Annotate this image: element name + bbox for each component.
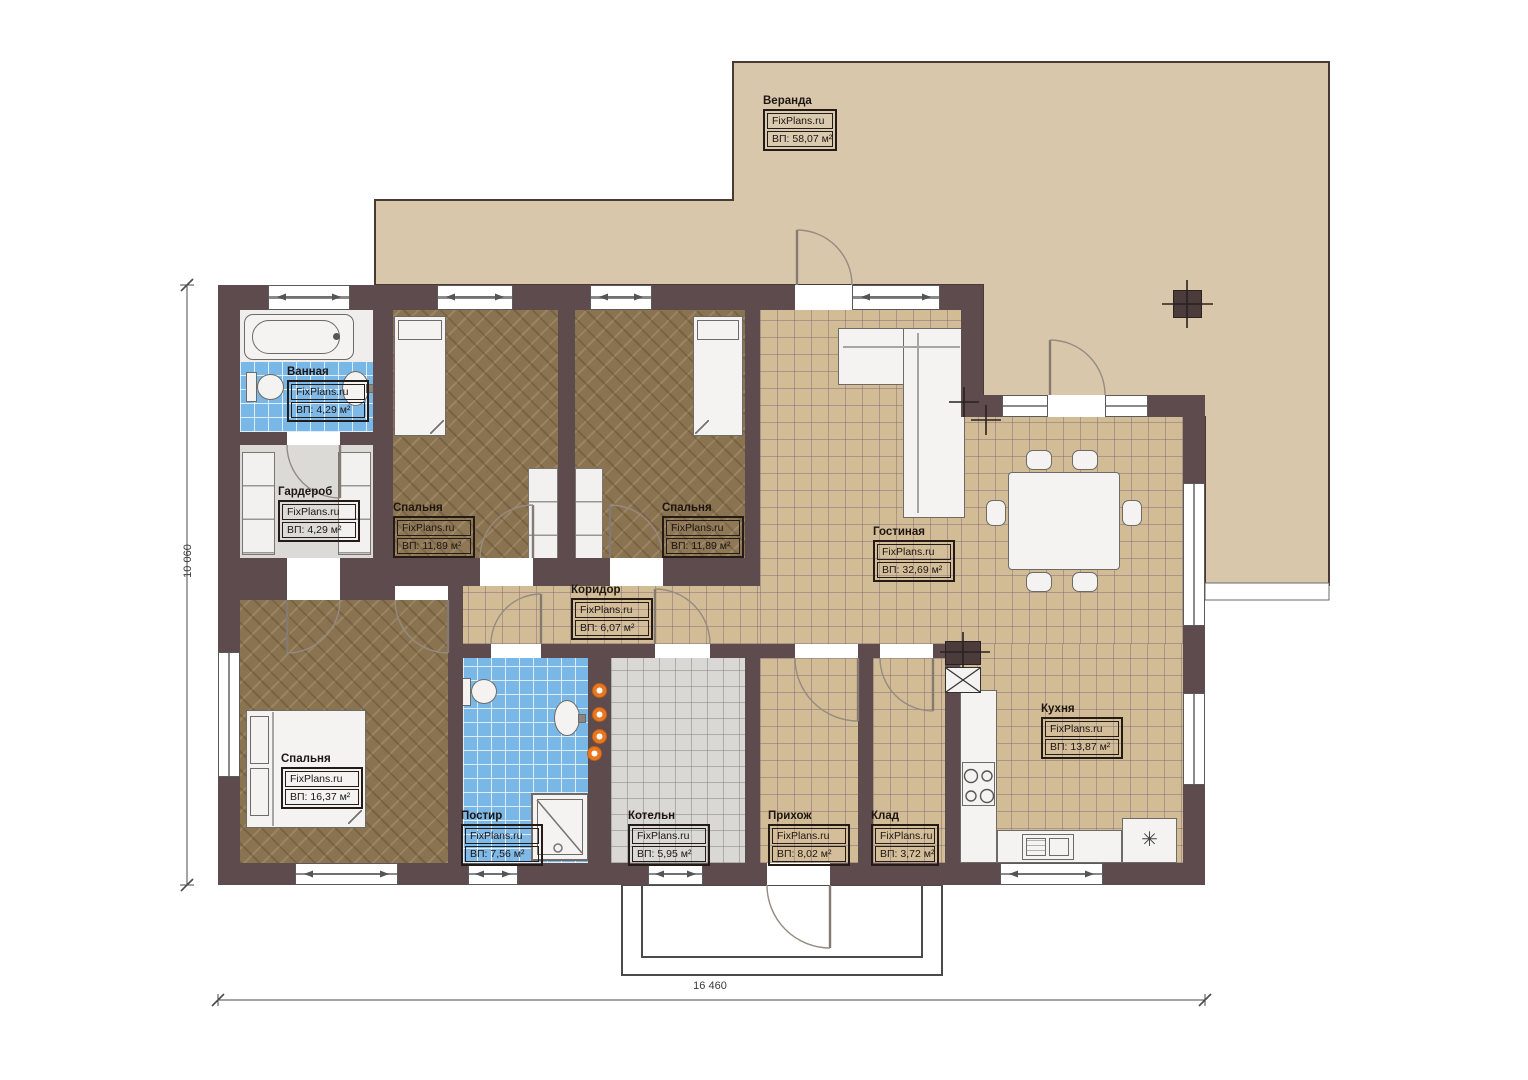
brand-text: FixPlans.ru <box>291 384 365 400</box>
room-label-storage: Клад FixPlans.ruВП: 3,72 м² <box>871 810 939 866</box>
room-label-corridor: Коридор FixPlans.ruВП: 6,07 м² <box>571 584 653 640</box>
room-name: Клад <box>871 810 939 822</box>
room-label-wardrobe: Гардероб FixPlans.ruВП: 4,29 м² <box>278 486 360 542</box>
bed-2-pillow <box>697 320 739 340</box>
chair <box>1122 500 1142 526</box>
door-opening-hallway <box>795 644 858 658</box>
room-name: Веранда <box>763 95 837 107</box>
room-area: ВП: 13,87 м² <box>1045 739 1119 755</box>
brand-text: FixPlans.ru <box>875 828 935 844</box>
sink-tap-icon <box>578 714 586 723</box>
room-label-boiler: Котельн FixPlans.ruВП: 5,95 м² <box>628 810 710 866</box>
toilet-bowl-icon <box>257 374 284 400</box>
room-name: Постир <box>461 810 543 822</box>
bed-double-headboard-line <box>272 712 274 826</box>
wall-between-bedrooms <box>558 310 575 558</box>
sofa-vertical <box>903 328 965 518</box>
heating-riser-icon <box>592 707 607 722</box>
door-opening-bedroom-3 <box>395 586 448 600</box>
heating-riser-icon <box>592 729 607 744</box>
window <box>268 285 350 310</box>
wall-bedroom2-living <box>745 310 760 586</box>
closet-shelf-left <box>528 468 558 560</box>
room-name: Спальня <box>662 502 744 514</box>
brand-text: FixPlans.ru <box>767 113 833 129</box>
brand-text: FixPlans.ru <box>465 828 539 844</box>
sofa-cushion-line-v <box>917 333 919 513</box>
porch-outer <box>622 885 942 975</box>
bathtub-faucet-icon <box>333 333 340 340</box>
bed-double-pillow-1 <box>250 716 269 764</box>
room-name: Прихож <box>768 810 850 822</box>
bed-1-fold <box>430 420 444 434</box>
dimension-label-left: 10 060 <box>182 521 194 601</box>
room-label-veranda: Веранда FixPlans.ruВП: 58,07 м² <box>763 95 837 151</box>
brand-text: FixPlans.ru <box>285 771 359 787</box>
door-opening-bathroom <box>287 432 340 445</box>
window <box>648 863 703 885</box>
chair <box>1026 450 1052 470</box>
room-area: ВП: 11,89 м² <box>666 538 740 554</box>
wall-corridor-top <box>373 558 760 586</box>
room-area: ВП: 11,89 м² <box>397 538 471 554</box>
window <box>468 863 518 885</box>
shower-tray <box>537 799 583 855</box>
bed-double-pillow-2 <box>250 768 269 816</box>
heating-riser-icon <box>592 683 607 698</box>
sofa-cushion-line-h <box>843 346 960 348</box>
room-label-bathroom: Ванная FixPlans.ruВП: 4,29 м² <box>287 366 369 422</box>
door-opening-wardrobe <box>287 558 340 600</box>
brand-text: FixPlans.ru <box>1045 721 1119 737</box>
wall-bathroom-right <box>373 310 393 558</box>
brand-text: FixPlans.ru <box>397 520 471 536</box>
room-area: ВП: 32,69 м² <box>877 562 951 578</box>
chair <box>1072 572 1098 592</box>
room-label-hallway: Прихож FixPlans.ruВП: 8,02 м² <box>768 810 850 866</box>
brand-text: FixPlans.ru <box>282 504 356 520</box>
wardrobe-shelf-left <box>242 452 275 555</box>
flue-box <box>945 667 981 693</box>
dining-table <box>1008 472 1120 570</box>
door-opening-boiler <box>655 644 710 658</box>
room-area: ВП: 4,29 м² <box>291 402 365 418</box>
floor-plan-canvas: ✳ <box>0 0 1528 1080</box>
room-name: Котельн <box>628 810 710 822</box>
window <box>437 285 513 310</box>
room-area: ВП: 3,72 м² <box>875 846 935 862</box>
chimney-kitchen <box>945 641 981 665</box>
brand-text: FixPlans.ru <box>877 544 951 560</box>
chimney-veranda <box>1173 290 1202 318</box>
chair <box>1026 572 1052 592</box>
room-name: Кухня <box>1041 703 1123 715</box>
door-opening-storage <box>880 644 933 658</box>
room-area: ВП: 5,95 м² <box>632 846 706 862</box>
room-label-bedroom-3: Спальня FixPlans.ruВП: 16,37 м² <box>281 753 363 809</box>
brand-text: FixPlans.ru <box>772 828 846 844</box>
room-area: ВП: 58,07 м² <box>767 131 833 147</box>
room-label-bedroom-1: Спальня FixPlans.ruВП: 11,89 м² <box>393 502 475 558</box>
room-area: ВП: 7,56 м² <box>465 846 539 862</box>
bed-2-fold <box>695 420 709 434</box>
window <box>218 652 240 777</box>
window <box>1002 395 1048 417</box>
room-name: Спальня <box>281 753 363 765</box>
room-area: ВП: 16,37 м² <box>285 789 359 805</box>
window <box>1000 863 1103 885</box>
wall-right <box>1183 395 1205 885</box>
kitchen-sink-drainboard <box>1026 838 1046 856</box>
toilet-icon <box>246 372 257 402</box>
chair <box>986 500 1006 526</box>
wall-boiler-hallway <box>745 658 760 863</box>
room-name: Ванная <box>287 366 369 378</box>
kitchen-sink-basin <box>1049 838 1069 856</box>
room-area: ВП: 6,07 м² <box>575 620 649 636</box>
window <box>590 285 652 310</box>
room-label-kitchen: Кухня FixPlans.ruВП: 13,87 м² <box>1041 703 1123 759</box>
bathtub-inner <box>252 320 340 354</box>
veranda-step <box>1205 583 1329 600</box>
entrance-door-opening <box>767 863 830 885</box>
door-opening-bedroom-2 <box>610 558 663 586</box>
door-opening-veranda-top <box>795 285 852 310</box>
fridge-icon: ✳ <box>1122 818 1177 863</box>
closet-shelf-right <box>575 468 603 560</box>
brand-text: FixPlans.ru <box>575 602 649 618</box>
sink-icon <box>554 700 580 736</box>
room-name: Гостиная <box>873 526 955 538</box>
room-label-laundry: Постир FixPlans.ruВП: 7,56 м² <box>461 810 543 866</box>
toilet-bowl-icon <box>471 679 497 704</box>
window <box>1105 395 1148 417</box>
bed-double-fold <box>348 810 362 824</box>
window <box>852 285 940 310</box>
dimension-label-bottom: 16 460 <box>660 980 760 992</box>
room-label-living: Гостиная FixPlans.ruВП: 32,69 м² <box>873 526 955 582</box>
room-name: Спальня <box>393 502 475 514</box>
room-area: ВП: 8,02 м² <box>772 846 846 862</box>
room-name: Гардероб <box>278 486 360 498</box>
brand-text: FixPlans.ru <box>666 520 740 536</box>
window <box>1183 483 1205 626</box>
chair <box>1072 450 1098 470</box>
brand-text: FixPlans.ru <box>632 828 706 844</box>
porch-inner <box>642 885 922 957</box>
stove <box>962 762 995 806</box>
room-label-bedroom-2: Спальня FixPlans.ruВП: 11,89 м² <box>662 502 744 558</box>
room-name: Коридор <box>571 584 653 596</box>
window <box>1183 693 1205 785</box>
room-area: ВП: 4,29 м² <box>282 522 356 538</box>
door-opening-bedroom-1 <box>480 558 533 586</box>
heating-riser-icon <box>587 746 602 761</box>
door-opening-laundry <box>491 644 541 658</box>
door-opening-veranda-east <box>1048 395 1105 417</box>
window <box>295 863 398 885</box>
bed-1-pillow <box>398 320 442 340</box>
